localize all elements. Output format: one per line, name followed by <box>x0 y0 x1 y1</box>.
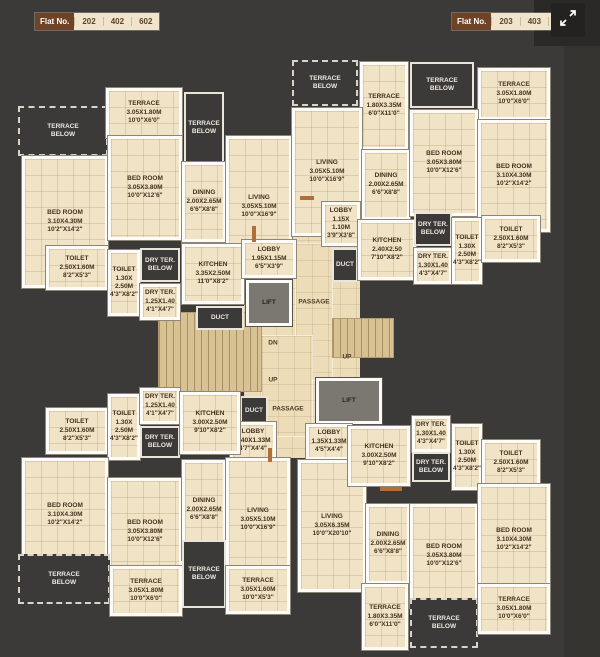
area-label-up: UP <box>342 354 351 361</box>
tl-duct: DUCT <box>196 306 244 330</box>
tl-terrace-below-mid: TERRACEBELOW <box>184 92 224 164</box>
tr-toilet-2: TOILET2.50X1.60M8'2"X5'3" <box>482 216 540 262</box>
flat-number: 602 <box>131 17 159 26</box>
tl-dry-terrace: DRY TER.1.25X1.404'1"X4'7" <box>140 284 180 320</box>
bl-kitchen: KITCHEN3.00X2.50M9'10"X8'2" <box>180 392 240 454</box>
tr-bedroom-mid: BED ROOM3.05X3.80M10'0"X12'6" <box>410 110 478 216</box>
tl-terrace-below-left: TERRACEBELOW <box>18 106 108 156</box>
stair-right <box>332 318 394 358</box>
tr-terrace-below-right: TERRACEBELOW <box>410 62 474 108</box>
tl-toilet-1: TOILET2.50X1.60M8'2"X5'3" <box>46 246 108 290</box>
area-label-passage: PASSAGE <box>272 406 303 413</box>
br-toilet-2: TOILET2.50X1.60M8'2"X5'3" <box>482 440 540 486</box>
door-threshold-1 <box>252 226 256 242</box>
door-threshold-4 <box>380 487 402 491</box>
core-dry-terrace-below-r: DRY TER.BELOW <box>414 212 452 246</box>
br-bedroom-right: BED ROOM3.10X4.30M10'2"X14'2" <box>478 484 550 596</box>
bl-terrace-2: TERRACE3.05X1.60M10'0"X5'3" <box>226 566 290 614</box>
core-lift-2: LIFT <box>316 378 382 424</box>
bl-terrace: TERRACE3.05X1.80M10'0"X6'0" <box>110 566 182 616</box>
bl-toilet-2: TOILET1.30X2.50M4'3"X8'2" <box>108 394 140 460</box>
tl-kitchen: KITCHEN3.35X2.50M11'0"X8'2" <box>182 244 244 304</box>
tl-dining: DINING2.00X2.65M6'6"X8'8" <box>182 162 226 242</box>
core-duct-1: DUCT <box>332 248 358 282</box>
area-label-dn: DN <box>268 340 277 347</box>
tr-terrace-below-left: TERRACEBELOW <box>292 60 358 106</box>
bl-dry-terrace-below: DRY TER.BELOW <box>140 426 180 458</box>
br-kitchen: KITCHEN3.00X2.50M9'10"X8'2" <box>348 426 410 486</box>
door-threshold-3 <box>268 448 272 462</box>
core-lift-1: LIFT <box>246 280 292 326</box>
core-lobby-1: LOBBY1.95X1.15M6'5"X3'9" <box>242 240 296 278</box>
core-kitchen-right: KITCHEN2.40X2.507'10"X8'2" <box>358 220 416 280</box>
br-dry-terrace-below: DRY TER.BELOW <box>412 452 450 482</box>
passage-lower <box>262 336 312 436</box>
tl-toilet-2: TOILET1.30X2.50M4'3"X8'2" <box>108 250 140 316</box>
area-label-up: UP <box>268 377 277 384</box>
bl-toilet-1: TOILET2.50X1.60M8'2"X5'3" <box>46 408 108 454</box>
tr-toilet-1: TOILET1.30X2.50M4'3"X8'2" <box>452 218 482 284</box>
tr-terrace-right: TERRACE3.05X1.80M10'0"X6'0" <box>478 68 550 120</box>
flat-number-badge-left: Flat No. 202402602 <box>35 13 159 30</box>
door-threshold-2 <box>300 196 314 200</box>
tr-dining: DINING2.00X2.65M6'6"X8'8" <box>362 150 410 220</box>
floor-plan-viewer: TERRACEBELOWTERRACE3.05X1.80M10'0"X6'0"T… <box>0 0 600 657</box>
br-terrace-below: TERRACEBELOW <box>410 598 478 648</box>
flat-numbers-left: 202402602 <box>74 13 159 30</box>
tl-bedroom-mid: BED ROOM3.05X3.80M10'0"X12'6" <box>108 136 182 240</box>
tl-dry-terrace-below: DRY TER.BELOW <box>140 248 180 282</box>
flat-no-label: Flat No. <box>452 13 491 30</box>
br-bedroom-mid: BED ROOM3.05X3.80M10'0"X12'6" <box>410 504 478 608</box>
br-terrace-right: TERRACE3.05X1.80M10'0"X6'0" <box>478 584 550 634</box>
flat-number: 403 <box>520 17 548 26</box>
br-terrace-tall: TERRACE1.80X3.35M6'0"X11'0" <box>362 584 408 650</box>
bl-terrace-below-left: TERRACEBELOW <box>18 554 110 604</box>
flat-number: 402 <box>103 17 131 26</box>
flat-number: 203 <box>491 17 519 26</box>
floor-plan: TERRACEBELOWTERRACE3.05X1.80M10'0"X6'0"T… <box>0 0 600 657</box>
br-dining: DINING2.00X2.65M6'6"X8'8" <box>366 504 410 584</box>
area-label-passage: PASSAGE <box>298 299 329 306</box>
core-lobby-4: LOBBY1.35X1.33M4'5"X4'4" <box>306 424 352 460</box>
flat-number: 202 <box>74 17 102 26</box>
bl-living: LIVING3.05X5.10M10'0"X16'9" <box>226 458 290 582</box>
bl-terrace-below-mid: TERRACEBELOW <box>182 540 226 608</box>
tl-terrace: TERRACE3.05X1.80M10'0"X6'0" <box>106 88 182 138</box>
bl-dry-terrace: DRY TER.1.25X1.404'1"X4'7" <box>140 388 180 424</box>
br-dry-terrace: DRY TER.1.30X1.404'3"X4'7" <box>412 416 450 452</box>
flat-no-label: Flat No. <box>35 13 74 30</box>
core-dry-terrace-r: DRY TER.1.30X1.404'3"X4'7" <box>414 248 452 284</box>
br-toilet-1: TOILET1.30X2.50M4'3"X8'2" <box>452 424 482 490</box>
core-lobby-2: LOBBY1.15X1.10M3'9"X3'8" <box>322 202 360 246</box>
expand-arrows-icon <box>558 8 578 33</box>
tr-terrace-tall: TERRACE1.80X3.35M6'0"X11'0" <box>360 62 408 150</box>
expand-button[interactable] <box>551 3 585 37</box>
